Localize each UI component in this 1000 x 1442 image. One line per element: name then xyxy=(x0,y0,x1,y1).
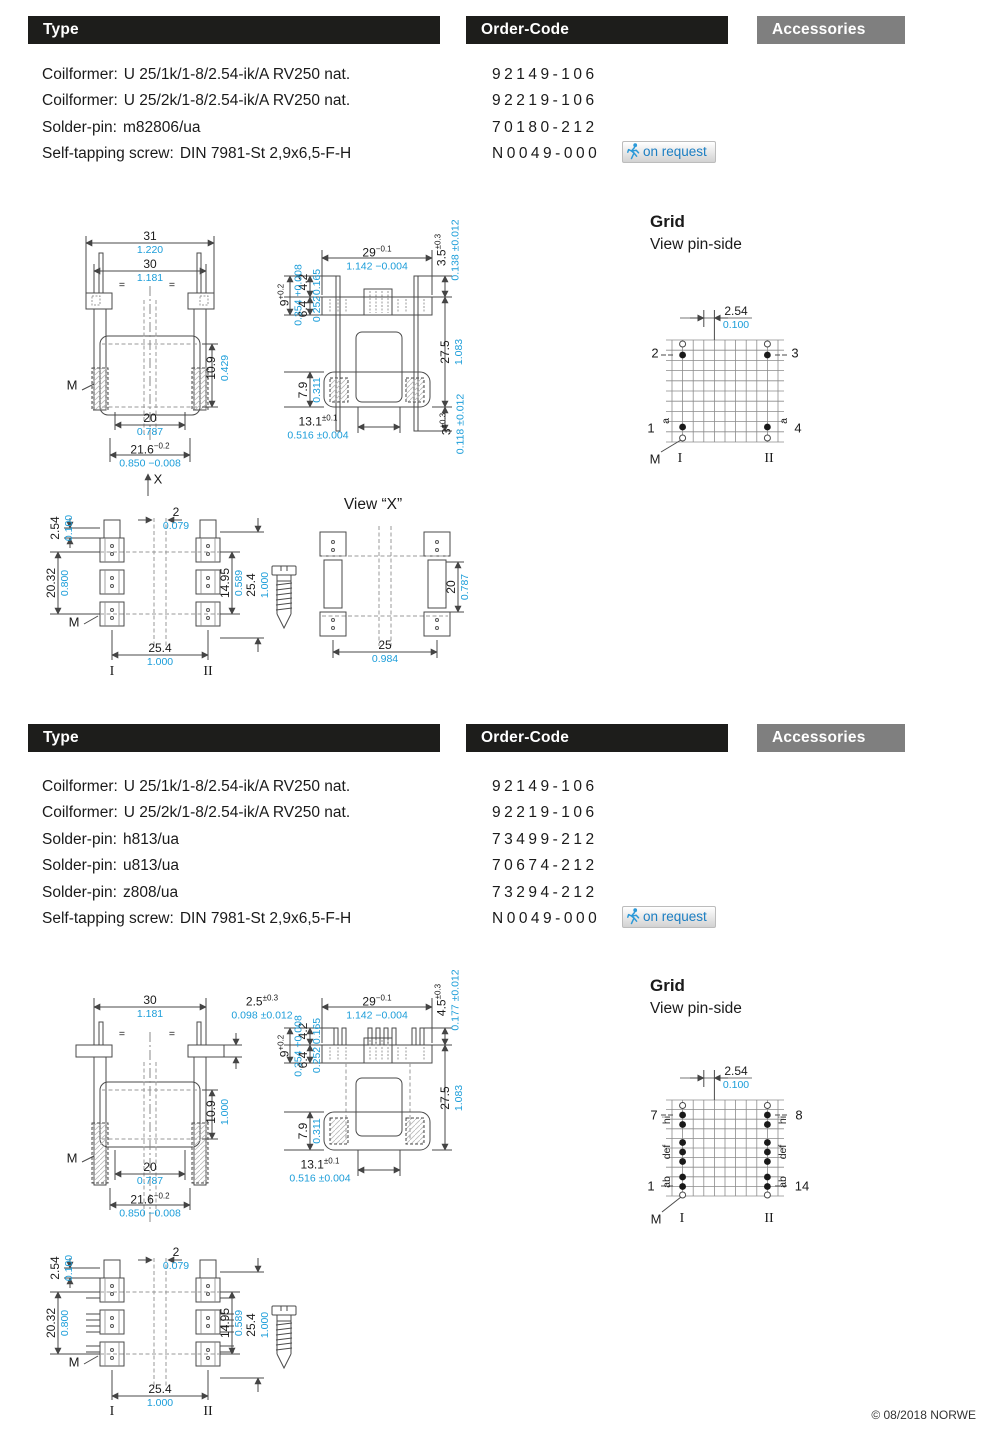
column-mark-2: II xyxy=(764,1211,773,1227)
dim-height-20-32: 20.320.800 xyxy=(45,568,71,598)
column-mark-1: I xyxy=(678,451,683,467)
dim-width-21-6: 21.6−0.20.850 −0.008 xyxy=(119,1191,181,1220)
part-name: h813/ua xyxy=(123,831,179,848)
dim-width-20: 200.787 xyxy=(137,412,163,438)
material-mark-m: M xyxy=(67,1151,78,1166)
screw-drawing-1 xyxy=(272,566,296,628)
dim-width-25: 250.984 xyxy=(372,639,398,665)
pin-number: 2 xyxy=(651,346,658,361)
part-row: Self-tapping screw:DIN 7981-St 2,9x6,5-F… xyxy=(42,145,962,163)
dim-height-3: 3±0.30.118 ±0.012 xyxy=(438,394,467,454)
pin-letter-group: ab xyxy=(777,1176,789,1188)
part-name: z808/ua xyxy=(123,884,178,901)
on-request-badge[interactable]: on request xyxy=(622,141,716,163)
part-name: U 25/2k/1-8/2.54-ik/A RV250 nat. xyxy=(124,92,350,109)
dim-width-21-6: 21.6−0.20.850 −0.008 xyxy=(119,441,181,470)
column-mark-1: I xyxy=(110,1404,115,1420)
part-order-code: 70180-212 xyxy=(492,119,598,137)
dim-width-29: 29−0.11.142 −0.004 xyxy=(346,993,408,1022)
order-code-header-label: Order-Code xyxy=(481,729,569,747)
dim-height-7-9: 7.90.311 xyxy=(297,377,323,403)
part-row: Coilformer:U 25/2k/1-8/2.54-ik/A RV250 n… xyxy=(42,92,962,110)
screw-drawing-2 xyxy=(272,1306,296,1368)
grid-title: Grid xyxy=(650,212,685,232)
pin-letter-group: hi xyxy=(661,1116,673,1124)
accessories-header-label: Accessories xyxy=(772,729,866,747)
pin-letter-group: hi xyxy=(777,1116,789,1124)
type-header-bar-2: Type xyxy=(28,724,440,752)
dim-height-6-4: 6.40.252 xyxy=(297,296,323,322)
accessories-header-label: Accessories xyxy=(772,21,866,39)
dim-height-14-95: 14.950.589 xyxy=(219,568,245,598)
part-row: Self-tapping screw:DIN 7981-St 2,9x6,5-F… xyxy=(42,910,962,928)
part-order-code: 73499-212 xyxy=(492,831,598,849)
grid-diagram-2 xyxy=(661,1070,789,1212)
view-x-title: View “X” xyxy=(344,496,402,514)
pin-letter: a xyxy=(660,418,672,424)
part-name: DIN 7981-St 2,9x6,5-F-H xyxy=(180,910,351,927)
pin-letter-group: def xyxy=(661,1145,673,1160)
equal-mark: = xyxy=(169,279,175,291)
grid-title: Grid xyxy=(650,976,685,996)
part-label: Self-tapping screw: xyxy=(42,910,174,927)
part-name: U 25/2k/1-8/2.54-ik/A RV250 nat. xyxy=(124,804,350,821)
on-request-label: on request xyxy=(643,144,707,159)
dim-width-20: 200.787 xyxy=(137,1161,163,1187)
column-mark-1: I xyxy=(110,664,115,680)
dim-height-27-5: 27.51.083 xyxy=(439,339,465,365)
pin-number: 8 xyxy=(795,1108,802,1123)
dim-width-25-4: 25.41.000 xyxy=(147,1383,173,1409)
pin-letter-group: ab xyxy=(661,1176,673,1188)
equal-mark: = xyxy=(119,1028,125,1040)
view-direction-label-x: X xyxy=(154,472,163,487)
pin-number: 7 xyxy=(650,1108,657,1123)
column-mark-2: II xyxy=(203,664,212,680)
pin-number: 3 xyxy=(791,346,798,361)
pin-number: 1 xyxy=(647,421,654,436)
part-name: DIN 7981-St 2,9x6,5-F-H xyxy=(180,145,351,162)
running-person-icon xyxy=(627,143,640,160)
dim-width-30: 301.181 xyxy=(137,994,163,1020)
pin-number: 1 xyxy=(647,1179,654,1194)
dim-width-31: 311.220 xyxy=(137,230,163,256)
part-order-code: 73294-212 xyxy=(492,884,598,902)
dim-height-20-32: 20.320.800 xyxy=(45,1308,71,1338)
dim-pitch-2-54: 2.540.100 xyxy=(49,1255,75,1281)
grid-subtitle: View pin-side xyxy=(650,236,742,254)
part-order-code: 92219-106 xyxy=(492,92,598,110)
part-row: Solder-pin:u813/ua 70674-212 xyxy=(42,857,962,875)
dim-height-10-9: 10.91.000 xyxy=(205,1099,231,1125)
material-mark-m: M xyxy=(650,452,661,467)
grid-subtitle: View pin-side xyxy=(650,1000,742,1018)
column-mark-2: II xyxy=(203,1404,212,1420)
part-name: U 25/1k/1-8/2.54-ik/A RV250 nat. xyxy=(124,66,350,83)
on-request-label: on request xyxy=(643,909,707,924)
part-row: Coilformer:U 25/1k/1-8/2.54-ik/A RV250 n… xyxy=(42,66,962,84)
dim-pitch-2-54: 2.540.100 xyxy=(49,515,75,541)
grid-pitch-dim: 2.540.100 xyxy=(723,305,749,331)
column-mark-2: II xyxy=(764,451,773,467)
part-label: Solder-pin: xyxy=(42,831,117,848)
material-mark-m: M xyxy=(651,1212,662,1227)
part-order-code: 92149-106 xyxy=(492,66,598,84)
accessories-header-bar-2: Accessories xyxy=(757,724,905,752)
material-mark-m: M xyxy=(67,378,78,393)
part-label: Coilformer: xyxy=(42,804,118,821)
pin-letter-group: def xyxy=(777,1145,789,1160)
dim-height-14-95: 14.950.589 xyxy=(219,1308,245,1338)
pin-number: 14 xyxy=(795,1179,809,1194)
part-order-code: 70674-212 xyxy=(492,857,598,875)
part-label: Solder-pin: xyxy=(42,884,117,901)
dim-height-7-9: 7.90.311 xyxy=(297,1118,323,1144)
dim-height-3-5: 3.5±0.30.138 ±0.012 xyxy=(433,219,462,280)
grid-pitch-dim: 2.540.100 xyxy=(723,1065,749,1091)
part-row: Coilformer:U 25/2k/1-8/2.54-ik/A RV250 n… xyxy=(42,804,962,822)
dim-width-13-1: 13.1±0.10.516 ±0.004 xyxy=(287,413,348,442)
part-label: Coilformer: xyxy=(42,66,118,83)
dim-height-27-5: 27.51.083 xyxy=(439,1085,465,1111)
dim-height-25-4: 25.41.000 xyxy=(245,1312,271,1338)
dim-height-6-4: 6.40.252 xyxy=(297,1047,323,1073)
part-row: Coilformer:U 25/1k/1-8/2.54-ik/A RV250 n… xyxy=(42,778,962,796)
dim-height-10-9: 10.90.429 xyxy=(205,355,231,381)
dim-width-25-4: 25.41.000 xyxy=(147,642,173,668)
accessories-header-bar-1: Accessories xyxy=(757,16,905,44)
part-order-code: N0049-000 xyxy=(492,145,600,163)
running-person-icon xyxy=(627,908,640,925)
part-label: Solder-pin: xyxy=(42,857,117,874)
dim-height-25-4: 25.41.000 xyxy=(245,572,271,598)
dim-height-20: 200.787 xyxy=(445,574,471,600)
equal-mark: = xyxy=(119,279,125,291)
equal-mark: = xyxy=(169,1028,175,1040)
pin-letter: a xyxy=(778,418,790,424)
column-mark-1: I xyxy=(680,1211,685,1227)
datasheet-page: Type Order-Code Accessories Coilformer:U… xyxy=(0,0,1000,1442)
part-order-code: 92149-106 xyxy=(492,778,598,796)
part-label: Solder-pin: xyxy=(42,119,117,136)
part-name: m82806/ua xyxy=(123,119,201,136)
grid-diagram-1 xyxy=(661,310,789,452)
order-code-header-bar-1: Order-Code xyxy=(466,16,728,44)
pin-number: 4 xyxy=(794,421,801,436)
type-header-bar-1: Type xyxy=(28,16,440,44)
material-mark-m: M xyxy=(69,615,80,630)
dim-width-29: 29−0.11.142 −0.004 xyxy=(346,244,408,273)
part-label: Coilformer: xyxy=(42,778,118,795)
material-mark-m: M xyxy=(69,1355,80,1370)
part-row: Solder-pin:m82806/ua 70180-212 xyxy=(42,119,962,137)
dim-width-13-1: 13.1±0.10.516 ±0.004 xyxy=(289,1156,350,1185)
type-header-label: Type xyxy=(43,729,79,747)
order-code-header-bar-2: Order-Code xyxy=(466,724,728,752)
type-header-label: Type xyxy=(43,21,79,39)
order-code-header-label: Order-Code xyxy=(481,21,569,39)
dim-height-4-5: 4.5±0.30.177 ±0.012 xyxy=(433,969,462,1030)
dim-width-30: 301.181 xyxy=(137,258,163,284)
part-name: u813/ua xyxy=(123,857,179,874)
part-name: U 25/1k/1-8/2.54-ik/A RV250 nat. xyxy=(124,778,350,795)
dim-width-2: 20.079 xyxy=(163,506,189,532)
on-request-badge[interactable]: on request xyxy=(622,906,716,928)
part-row: Solder-pin:z808/ua 73294-212 xyxy=(42,884,962,902)
dim-width-2: 20.079 xyxy=(163,1246,189,1272)
part-order-code: 92219-106 xyxy=(492,804,598,822)
part-label: Self-tapping screw: xyxy=(42,145,174,162)
copyright-notice: © 08/2018 NORWE xyxy=(871,1408,976,1422)
part-row: Solder-pin:h813/ua 73499-212 xyxy=(42,831,962,849)
part-order-code: N0049-000 xyxy=(492,910,600,928)
part-label: Coilformer: xyxy=(42,92,118,109)
